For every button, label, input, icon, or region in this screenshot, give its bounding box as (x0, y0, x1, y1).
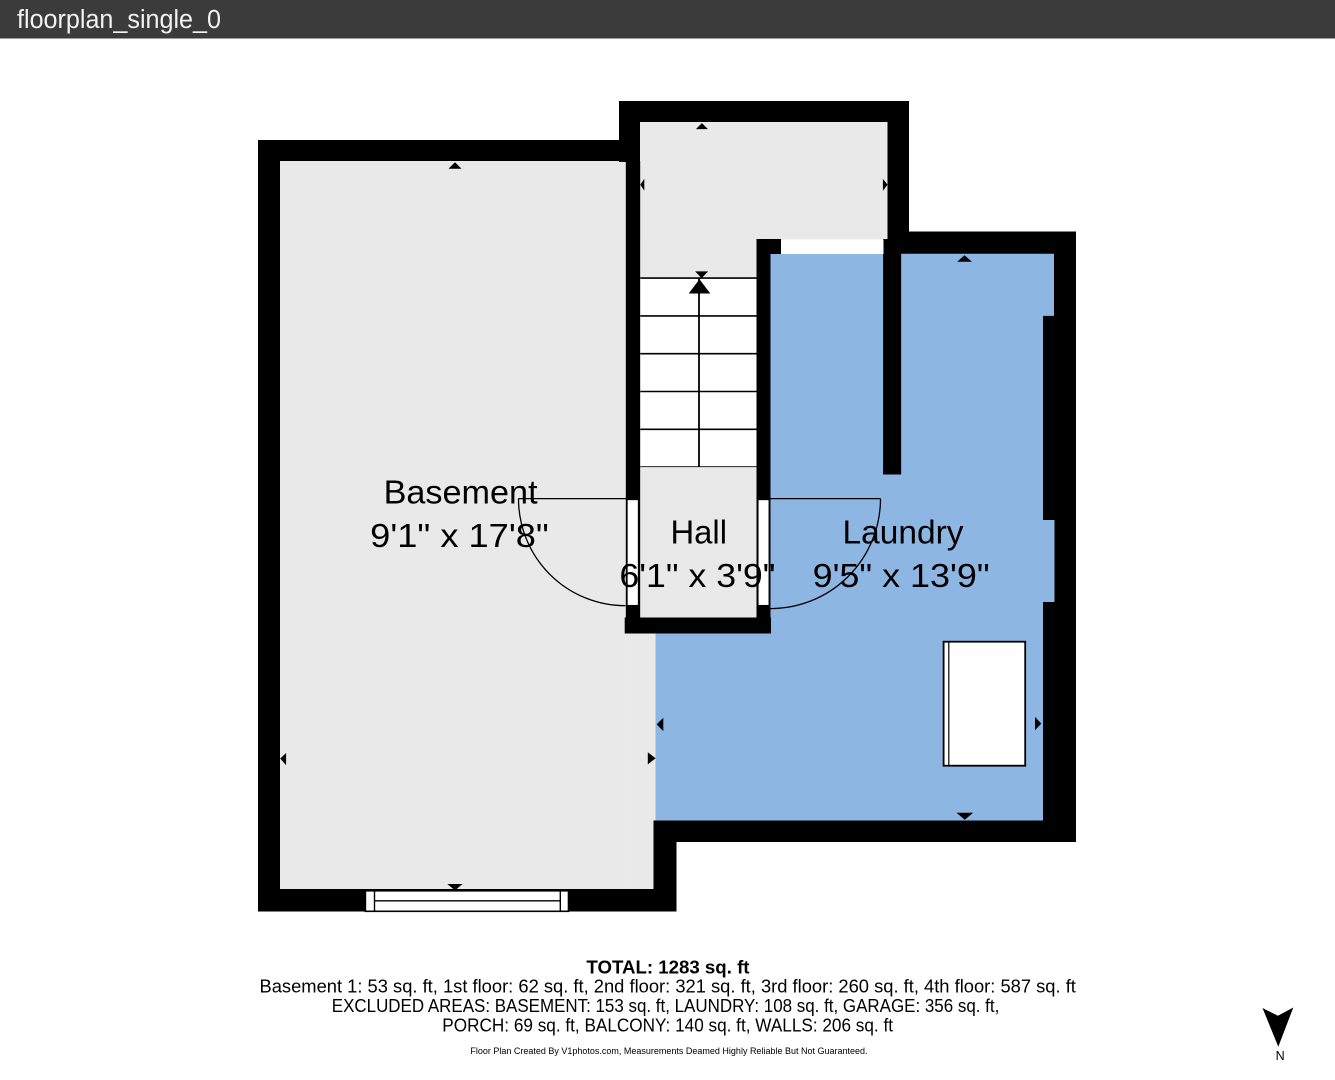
svg-text:floorplan_single_0: floorplan_single_0 (17, 6, 221, 34)
svg-text:EXCLUDED AREAS: BASEMENT: 153: EXCLUDED AREAS: BASEMENT: 153 sq. ft, LA… (332, 996, 1000, 1016)
svg-text:Hall: Hall (671, 515, 728, 552)
svg-text:6'1" x 3'9": 6'1" x 3'9" (619, 558, 775, 595)
svg-text:TOTAL: 1283 sq. ft: TOTAL: 1283 sq. ft (586, 957, 749, 977)
svg-text:PORCH: 69 sq. ft, BALCONY: 140: PORCH: 69 sq. ft, BALCONY: 140 sq. ft, W… (442, 1015, 893, 1035)
svg-text:9'1" x 17'8": 9'1" x 17'8" (370, 518, 549, 555)
svg-text:9'5" x 13'9": 9'5" x 13'9" (813, 558, 990, 595)
svg-text:Basement: Basement (384, 475, 539, 512)
svg-text:Laundry: Laundry (843, 515, 964, 552)
svg-text:N: N (1276, 1049, 1285, 1063)
svg-text:Floor Plan Created By V1photos: Floor Plan Created By V1photos.com, Meas… (470, 1046, 867, 1056)
svg-text:Basement 1: 53 sq. ft, 1st flo: Basement 1: 53 sq. ft, 1st floor: 62 sq.… (260, 977, 1076, 997)
